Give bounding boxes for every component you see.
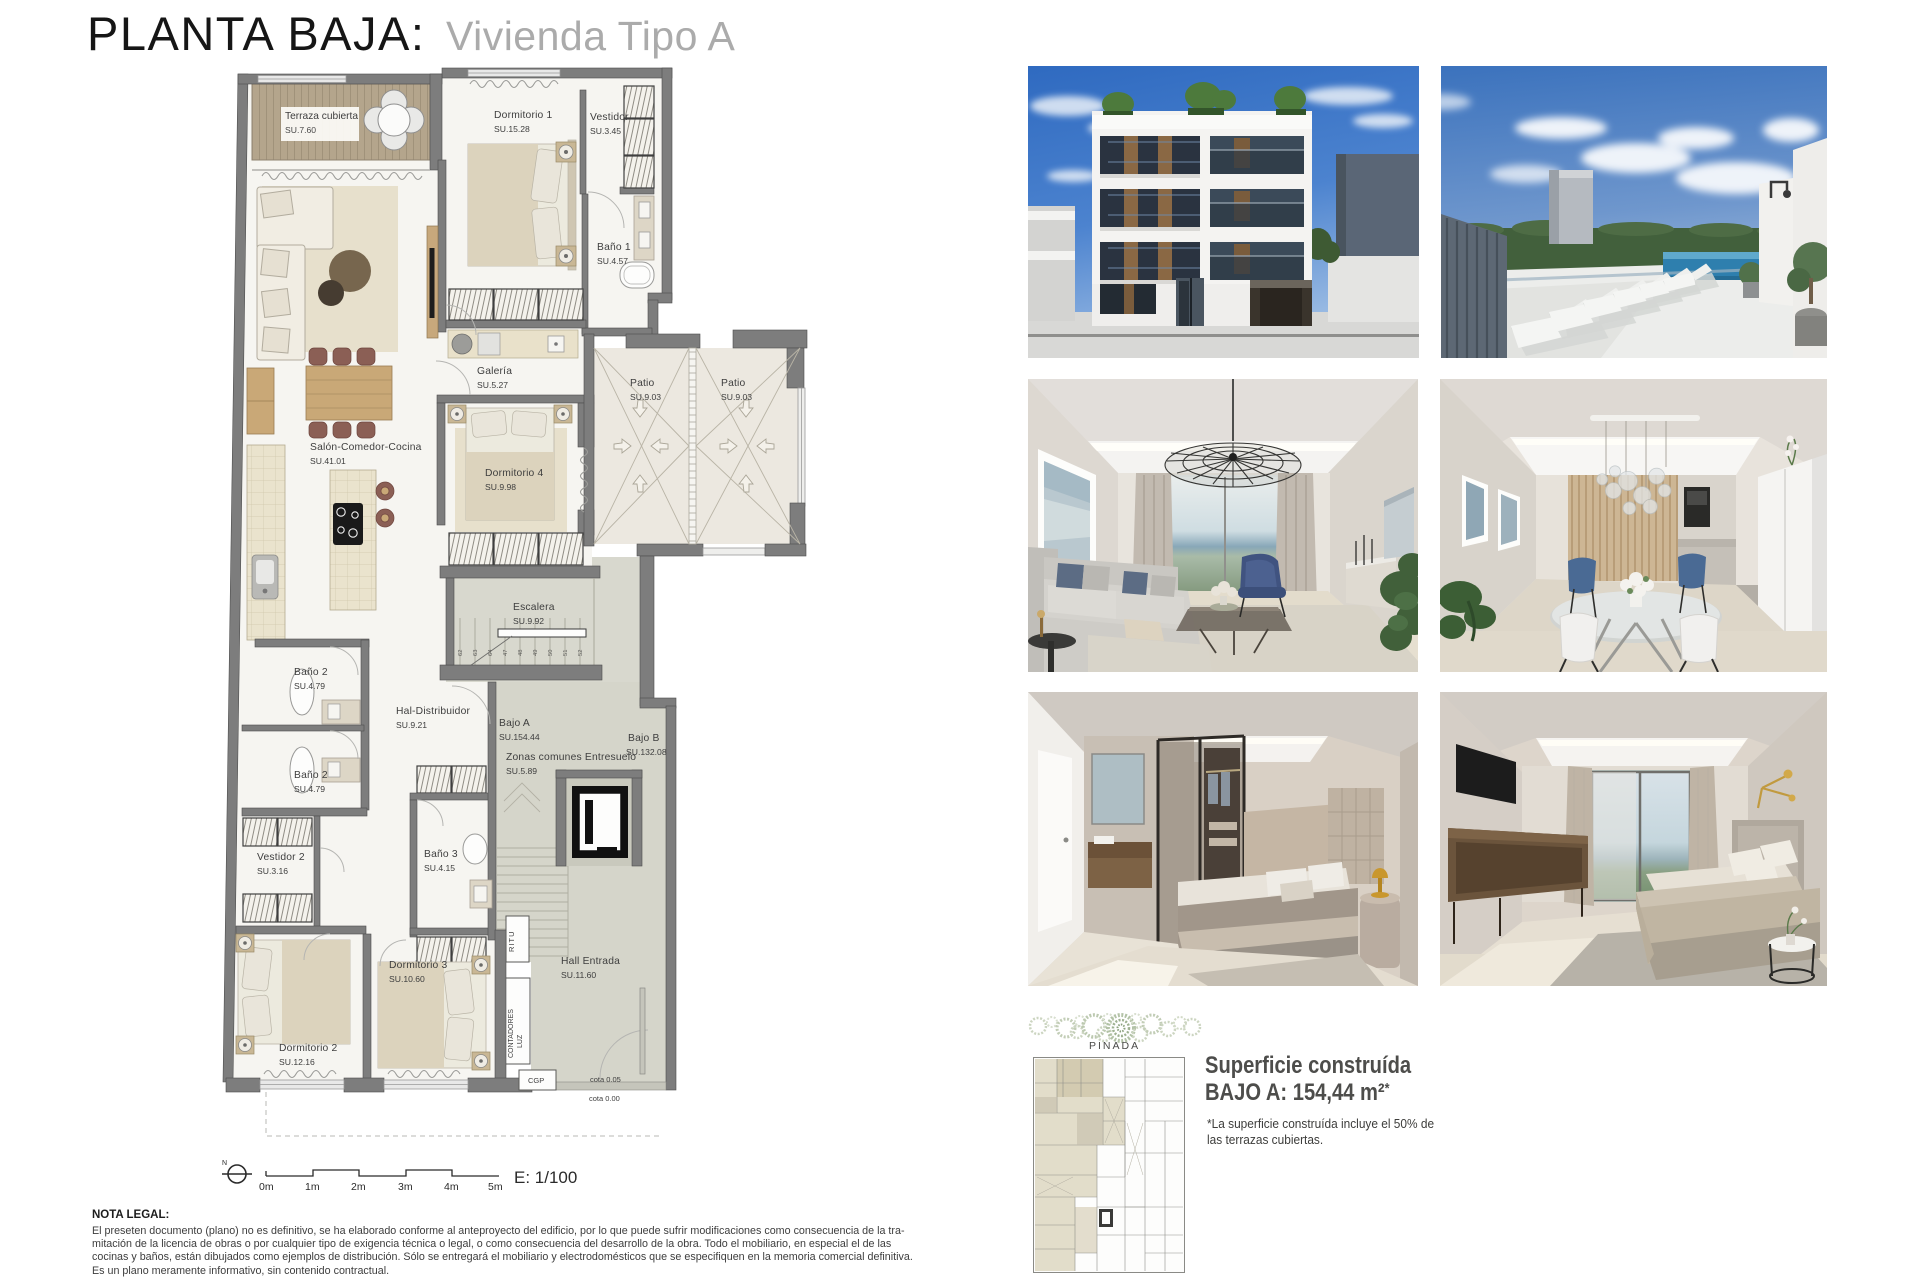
svg-text:5m: 5m <box>488 1181 503 1193</box>
svg-text:Escalera: Escalera <box>513 602 555 613</box>
svg-text:cota 0.05: cota 0.05 <box>590 1075 621 1084</box>
svg-text:48: 48 <box>518 650 524 656</box>
svg-text:SU.154.44: SU.154.44 <box>499 732 540 742</box>
svg-text:51: 51 <box>563 650 569 656</box>
svg-text:SU.5.27: SU.5.27 <box>477 380 508 390</box>
svg-text:1m: 1m <box>305 1181 320 1193</box>
svg-text:Dormitorio 3: Dormitorio 3 <box>389 960 448 971</box>
svg-text:SU.4.79: SU.4.79 <box>294 784 325 794</box>
svg-text:RITU: RITU <box>507 931 516 953</box>
svg-text:50: 50 <box>548 650 554 656</box>
svg-text:SU.5.89: SU.5.89 <box>506 766 537 776</box>
svg-text:SU.9.03: SU.9.03 <box>721 392 752 402</box>
svg-text:Baño 1: Baño 1 <box>597 242 631 253</box>
svg-text:64: 64 <box>488 649 494 656</box>
svg-text:SU.4.57: SU.4.57 <box>597 256 628 266</box>
svg-text:Patio: Patio <box>630 378 655 389</box>
svg-text:N: N <box>222 1160 227 1167</box>
svg-text:SU.41.01: SU.41.01 <box>310 456 346 466</box>
svg-text:SU.9.98: SU.9.98 <box>485 482 516 492</box>
svg-text:Baño 2: Baño 2 <box>294 667 328 678</box>
svg-text:47: 47 <box>503 650 509 656</box>
svg-text:Baño 2: Baño 2 <box>294 770 328 781</box>
svg-text:SU.132.08: SU.132.08 <box>626 747 667 757</box>
svg-text:E: 1/100: E: 1/100 <box>514 1168 577 1187</box>
svg-text:0m: 0m <box>259 1181 274 1193</box>
svg-text:Bajo A: Bajo A <box>499 718 530 729</box>
svg-text:49: 49 <box>533 650 539 656</box>
svg-text:CONTADORES: CONTADORES <box>508 1009 515 1058</box>
svg-text:SU.4.79: SU.4.79 <box>294 681 325 691</box>
svg-text:SU.4.15: SU.4.15 <box>424 863 455 873</box>
svg-text:cota 0.00: cota 0.00 <box>589 1094 620 1103</box>
svg-text:52: 52 <box>578 650 584 656</box>
svg-text:SU.10.60: SU.10.60 <box>389 974 425 984</box>
svg-text:3m: 3m <box>398 1181 413 1193</box>
svg-text:SU.15.28: SU.15.28 <box>494 124 530 134</box>
svg-text:SU.3.16: SU.3.16 <box>257 866 288 876</box>
svg-text:Dormitorio 1: Dormitorio 1 <box>494 110 553 121</box>
svg-text:SU.7.60: SU.7.60 <box>285 125 316 135</box>
svg-text:SU.9.21: SU.9.21 <box>396 720 427 730</box>
svg-text:Hal-Distribuidor: Hal-Distribuidor <box>396 706 471 717</box>
svg-text:Salón-Comedor-Cocina: Salón-Comedor-Cocina <box>310 442 422 453</box>
svg-text:Hall Entrada: Hall Entrada <box>561 956 620 967</box>
svg-text:63: 63 <box>473 650 479 656</box>
svg-text:CGP: CGP <box>528 1076 544 1085</box>
svg-text:SU.3.45: SU.3.45 <box>590 126 621 136</box>
svg-text:Galería: Galería <box>477 366 512 377</box>
svg-text:LUZ: LUZ <box>517 1034 524 1048</box>
svg-text:Terraza cubierta: Terraza cubierta <box>285 111 358 122</box>
svg-text:SU.9.03: SU.9.03 <box>630 392 661 402</box>
svg-text:Zonas comunes Entresuelo: Zonas comunes Entresuelo <box>506 752 636 763</box>
svg-text:SU.9.92: SU.9.92 <box>513 616 544 626</box>
svg-text:Baño 3: Baño 3 <box>424 849 458 860</box>
svg-text:Bajo B: Bajo B <box>628 733 660 744</box>
svg-text:SU.12.16: SU.12.16 <box>279 1057 315 1067</box>
svg-text:Vestidor: Vestidor <box>590 112 629 123</box>
svg-text:SU.11.60: SU.11.60 <box>561 970 596 980</box>
svg-text:Patio: Patio <box>721 378 746 389</box>
svg-text:4m: 4m <box>444 1181 459 1193</box>
svg-text:Dormitorio 2: Dormitorio 2 <box>279 1043 338 1054</box>
svg-text:Vestidor 2: Vestidor 2 <box>257 852 305 863</box>
svg-text:2m: 2m <box>351 1181 366 1193</box>
svg-text:Dormitorio 4: Dormitorio 4 <box>485 468 544 479</box>
svg-text:62: 62 <box>458 650 464 656</box>
